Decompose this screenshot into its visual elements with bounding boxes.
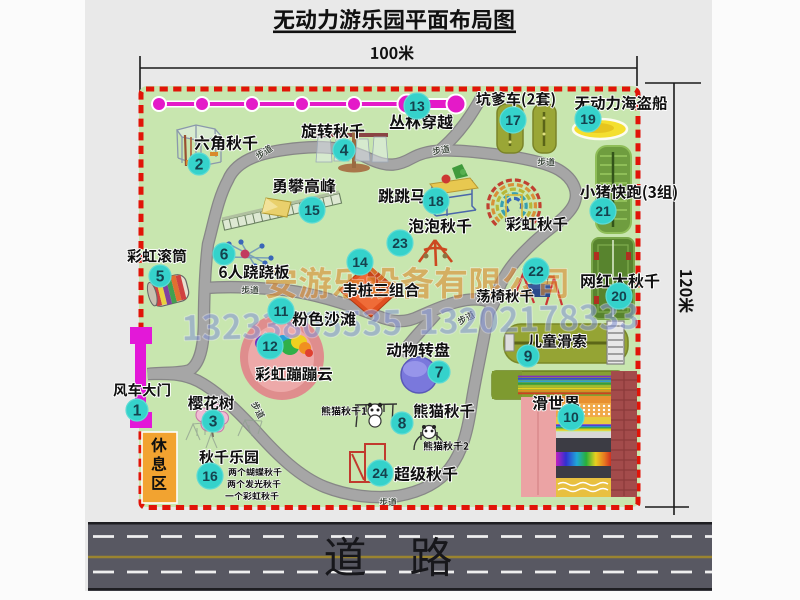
svg-text:19: 19 [580, 111, 596, 127]
svg-text:12: 12 [262, 338, 278, 354]
svg-text:16: 16 [202, 468, 218, 484]
svg-text:22: 22 [528, 263, 544, 279]
svg-text:9: 9 [524, 348, 533, 365]
svg-text:17: 17 [505, 112, 521, 128]
svg-text:8: 8 [398, 415, 407, 432]
svg-text:18: 18 [428, 193, 444, 209]
svg-text:5: 5 [156, 268, 165, 285]
svg-text:13: 13 [409, 98, 425, 114]
svg-text:1: 1 [133, 402, 142, 419]
svg-text:4: 4 [340, 142, 349, 159]
svg-text:11: 11 [274, 303, 289, 319]
svg-text:23: 23 [392, 235, 408, 251]
svg-text:3: 3 [209, 413, 218, 430]
svg-text:20: 20 [611, 288, 627, 304]
svg-text:2: 2 [195, 156, 204, 173]
svg-text:6: 6 [220, 246, 229, 263]
svg-text:14: 14 [352, 254, 368, 270]
svg-text:24: 24 [372, 465, 388, 481]
svg-text:10: 10 [563, 409, 579, 425]
svg-text:15: 15 [304, 202, 320, 218]
svg-text:21: 21 [595, 203, 611, 219]
svg-text:7: 7 [435, 364, 444, 381]
